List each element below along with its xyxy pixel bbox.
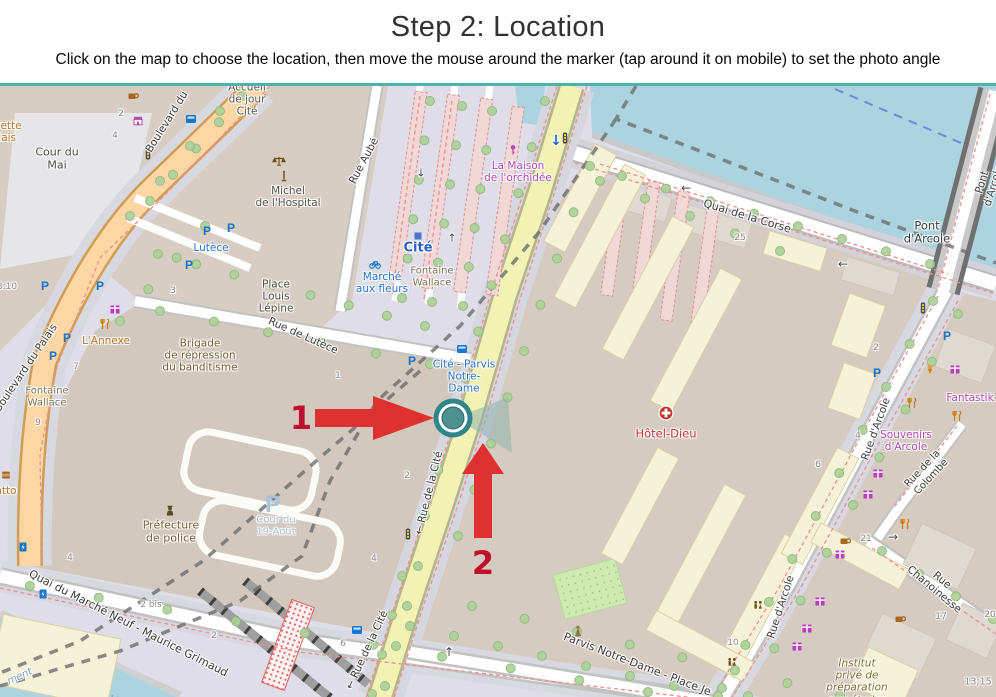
traffic-icon — [563, 133, 567, 144]
charging-icon — [40, 590, 47, 599]
map-base-graphics: P P — [0, 86, 996, 697]
parking-big-icon — [265, 491, 281, 518]
page-instructions: Click on the map to choose the location,… — [0, 51, 996, 69]
parking-icon — [63, 331, 71, 345]
gift-icon — [803, 625, 812, 633]
parking-icon — [943, 329, 951, 343]
traffic-icon — [406, 529, 410, 540]
parking-icon — [185, 258, 193, 272]
charging-icon — [20, 543, 27, 552]
hospital-icon — [659, 406, 673, 420]
gift-icon — [874, 470, 883, 478]
gift-icon — [793, 643, 802, 651]
metro-icon — [415, 233, 422, 240]
gift-icon — [816, 598, 825, 606]
bus-icon — [457, 345, 467, 353]
bus-icon — [186, 115, 196, 123]
bus-icon — [352, 626, 362, 634]
location-marker[interactable] — [434, 399, 473, 438]
traffic-icon — [921, 303, 925, 314]
store-icon — [134, 117, 142, 125]
page-header: Step 2: Location Click on the map to cho… — [0, 0, 996, 83]
gift-icon — [111, 306, 120, 314]
parking-icon — [408, 354, 416, 368]
gift-icon — [864, 491, 873, 499]
parking-icon — [41, 279, 49, 293]
parking-icon — [227, 221, 235, 235]
parking-icon — [96, 279, 104, 293]
gift-icon — [951, 366, 960, 374]
parking-icon — [203, 224, 211, 238]
map-canvas[interactable]: P P — [0, 83, 996, 697]
fastfood-icon — [2, 472, 10, 479]
traffic-icon — [146, 149, 150, 160]
page-title: Step 2: Location — [0, 0, 996, 44]
parking-icon — [873, 366, 881, 380]
gift-icon — [836, 551, 845, 559]
parking-icon — [49, 349, 57, 363]
